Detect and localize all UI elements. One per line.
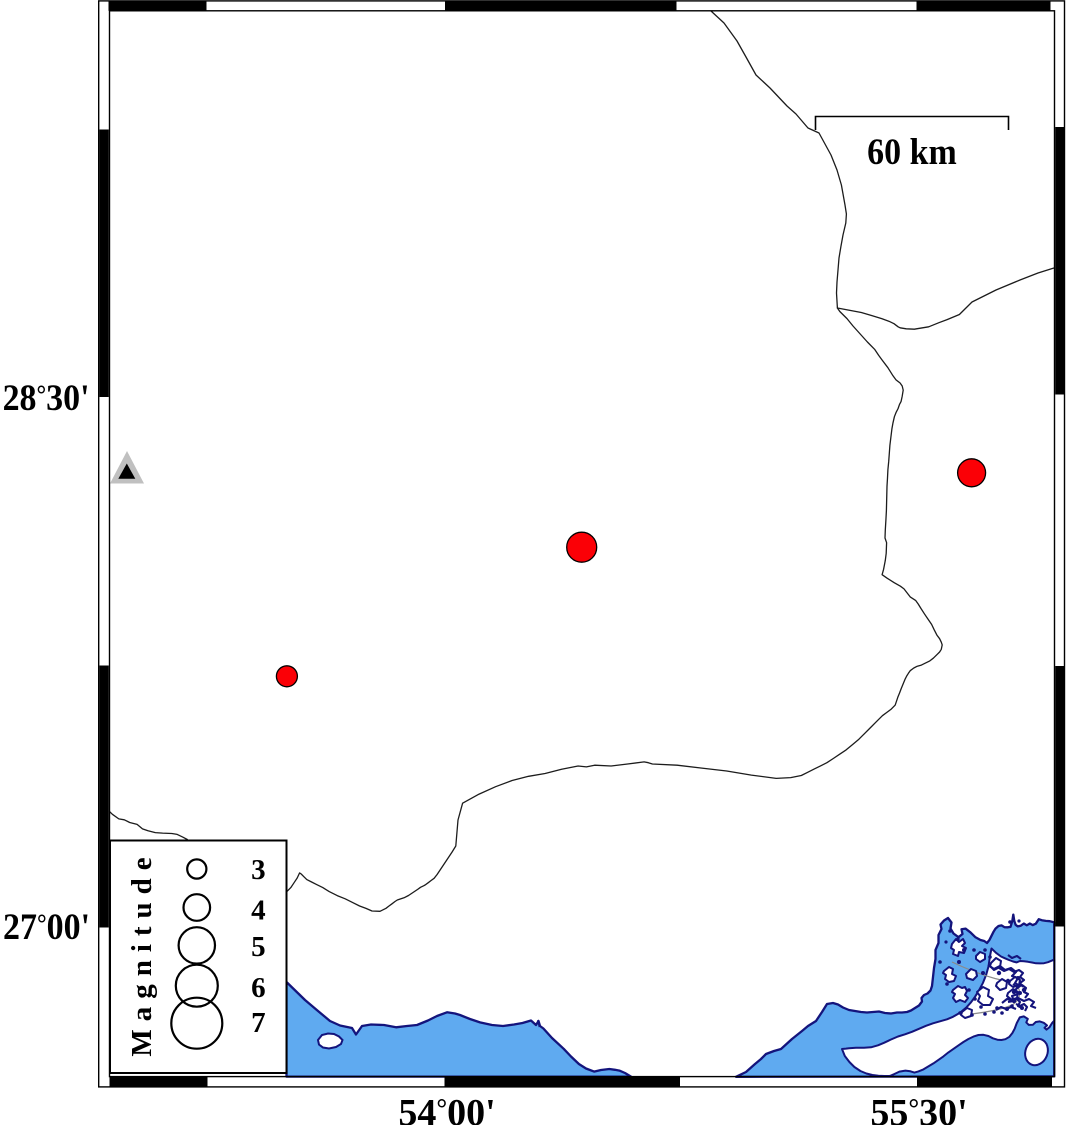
svg-text:3: 3 <box>251 854 266 886</box>
svg-text:Magnitude: Magnitude <box>126 849 158 1056</box>
svg-text:5: 5 <box>251 931 266 963</box>
svg-text:7: 7 <box>251 1007 266 1039</box>
svg-text:54°00': 54°00' <box>398 1092 495 1125</box>
svg-text:4: 4 <box>251 895 266 927</box>
svg-text:27°00': 27°00' <box>3 907 90 947</box>
svg-text:6: 6 <box>251 972 266 1004</box>
svg-text:60 km: 60 km <box>867 132 957 172</box>
svg-text:28°30': 28°30' <box>3 378 90 418</box>
svg-text:55°30': 55°30' <box>870 1092 967 1125</box>
